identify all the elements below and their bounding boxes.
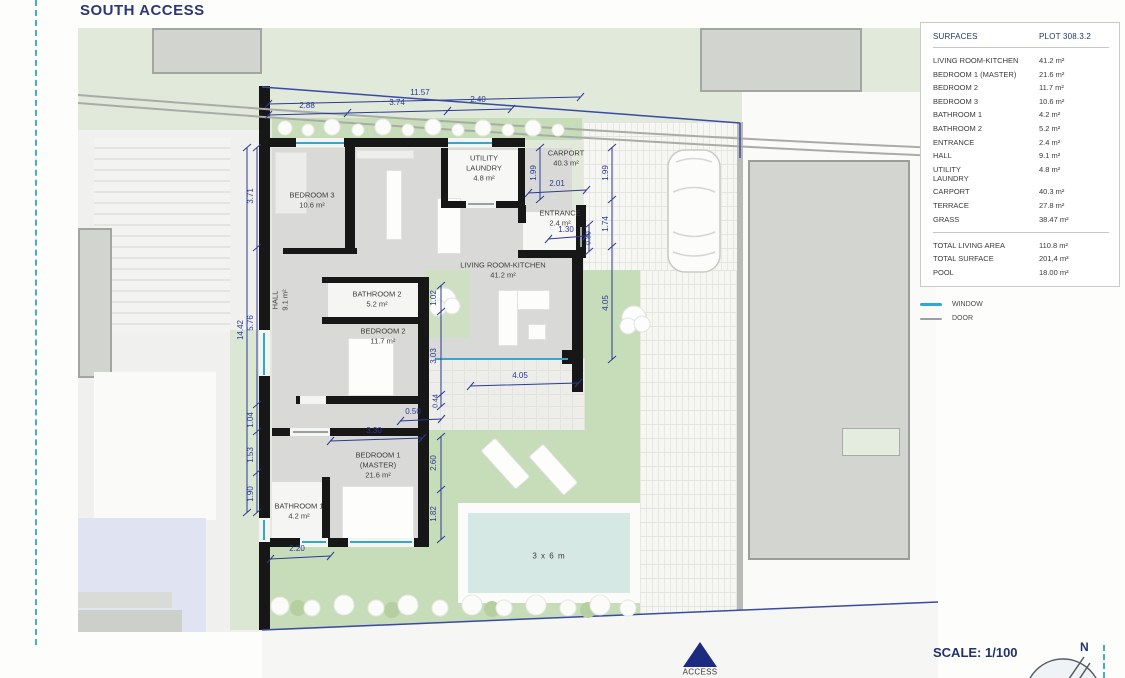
dim-label-carport-w: 2.01 bbox=[549, 180, 565, 188]
sofa-side bbox=[498, 290, 518, 346]
wall-utility-east bbox=[518, 148, 525, 208]
dim-label-in-4: 0.50 bbox=[405, 408, 421, 416]
access-label: ACCESS bbox=[683, 668, 718, 677]
surfaces-row: BEDROOM 211.7 m² bbox=[933, 83, 1109, 92]
grass-strip-top bbox=[272, 118, 582, 140]
wall-opening bbox=[348, 538, 414, 547]
room-label-utility: UTILITY LAUNDRY 4.8 m² bbox=[466, 153, 502, 182]
room-label-hall: HALL 9.1 m² bbox=[270, 289, 290, 310]
carport-paving bbox=[583, 122, 737, 272]
dim-label-left-5: 1.90 bbox=[247, 486, 255, 502]
surfaces-header-title: SURFACES bbox=[933, 32, 1039, 41]
driveway-paving bbox=[640, 270, 737, 630]
access-arrow-icon bbox=[683, 642, 717, 667]
dim-label-left-2: 5.76 bbox=[247, 315, 255, 331]
dashed-boundary-line-left bbox=[35, 0, 37, 645]
wall-closet bbox=[283, 248, 357, 254]
dim-label-right-1: 1.99 bbox=[602, 165, 610, 181]
wall-entrance-stub bbox=[518, 205, 526, 223]
surfaces-row: BATHROOM 25.2 m² bbox=[933, 124, 1109, 133]
dim-label-in-2: 3.03 bbox=[430, 348, 438, 364]
surfaces-row: HALL9.1 m² bbox=[933, 151, 1109, 160]
dashed-boundary-line-right bbox=[1103, 645, 1105, 678]
room-label-bathroom2: BATHROOM 2 5.2 m² bbox=[352, 289, 401, 309]
dim-label-entrance-d: 0.80 bbox=[586, 231, 593, 245]
wall-utility-west bbox=[441, 148, 448, 208]
wall-bathroom2-south bbox=[322, 317, 426, 324]
bed-bedroom1 bbox=[342, 486, 414, 540]
dim-label-entrance-w: 1.30 bbox=[558, 226, 574, 234]
legend: WINDOW DOOR bbox=[920, 301, 983, 329]
room-label-bathroom1: BATHROOM 1 4.2 m² bbox=[274, 501, 323, 521]
dim-label-left-3: 1.04 bbox=[247, 412, 255, 428]
bed-bedroom2 bbox=[348, 338, 394, 396]
wall-opening bbox=[300, 396, 326, 404]
dim-label-top-2: 3.74 bbox=[389, 99, 405, 107]
terrace bbox=[428, 358, 585, 430]
surfaces-row: UTILITY LAUNDRY4.8 m² bbox=[933, 165, 1109, 183]
dim-label-terrace-w: 4.05 bbox=[512, 372, 528, 380]
dim-label-in-5: 3.30 bbox=[366, 427, 382, 435]
legend-door: DOOR bbox=[920, 315, 983, 322]
wall-bedroom3-east bbox=[345, 138, 355, 250]
surfaces-panel: SURFACES PLOT 308.3.2 LIVING ROOM-KITCHE… bbox=[920, 22, 1120, 287]
legend-window-label: WINDOW bbox=[952, 301, 983, 308]
dim-label-bath1-w: 2.20 bbox=[289, 545, 305, 553]
neighbor-building-right bbox=[748, 160, 910, 560]
room-label-bedroom1: BEDROOM 1 (MASTER) 21.6 m² bbox=[355, 450, 400, 479]
neighbor-steps bbox=[78, 592, 172, 608]
wall-opening bbox=[466, 201, 496, 208]
compass-icon bbox=[1025, 657, 1101, 678]
dim-label-utility-h: 1.99 bbox=[530, 165, 538, 181]
garden-south bbox=[262, 545, 428, 630]
scale-label: SCALE: 1/100 bbox=[933, 645, 1018, 660]
side-grass-strip bbox=[230, 330, 262, 630]
room-label-bedroom2: BEDROOM 2 11.7 m² bbox=[360, 326, 405, 346]
neighbor-steps-2 bbox=[78, 610, 182, 632]
surfaces-row: LIVING ROOM-KITCHEN41.2 m² bbox=[933, 56, 1109, 65]
page-title: SOUTH ACCESS bbox=[80, 2, 205, 19]
kitchen-island bbox=[386, 170, 402, 240]
wall-opening bbox=[290, 428, 330, 436]
wall-living-corner bbox=[562, 350, 583, 364]
neighbor-building-top-left bbox=[152, 28, 262, 74]
wall-opening bbox=[259, 330, 270, 376]
room-label-bedroom3: BEDROOM 3 10.6 m² bbox=[289, 190, 334, 210]
surfaces-row: TERRACE27.8 m² bbox=[933, 201, 1109, 210]
north-label: N bbox=[1080, 640, 1089, 654]
kitchen-counter bbox=[356, 150, 414, 159]
room-label-living: LIVING ROOM-KITCHEN 41.2 m² bbox=[460, 260, 545, 280]
surfaces-total-row: POOL18.00 m² bbox=[933, 268, 1109, 277]
surfaces-row: BEDROOM 310.6 m² bbox=[933, 97, 1109, 106]
surfaces-total-row: TOTAL SURFACE201,4 m² bbox=[933, 254, 1109, 263]
pool-size-label: 3 x 6 m bbox=[532, 552, 565, 561]
dim-label-right-3: 4.05 bbox=[602, 295, 610, 311]
dim-label-left-1: 3.71 bbox=[247, 188, 255, 204]
wall-opening bbox=[259, 518, 270, 542]
surfaces-total-row: TOTAL LIVING AREA110.8 m² bbox=[933, 241, 1109, 250]
dim-label-bed1-r1: 2.60 bbox=[430, 455, 438, 471]
floor-plan-page: SOUTH ACCESS bbox=[0, 0, 1125, 678]
neighbor-terraces bbox=[94, 138, 230, 332]
dim-label-top-total: 11.57 bbox=[410, 89, 429, 97]
neighbor-pool-right bbox=[842, 428, 900, 456]
dim-label-left-4: 1.53 bbox=[247, 447, 255, 463]
dim-label-in-1: 1.02 bbox=[430, 290, 438, 306]
wall-bathroom2-north bbox=[322, 277, 426, 283]
dim-label-right-2: 1.74 bbox=[602, 216, 610, 232]
surfaces-row: CARPORT40.3 m² bbox=[933, 187, 1109, 196]
dim-label-left-total: 14.42 bbox=[237, 320, 245, 340]
door-icon bbox=[920, 318, 942, 320]
dim-label-in-3: 0.44 bbox=[433, 394, 440, 408]
surfaces-row: GRASS38.47 m² bbox=[933, 215, 1109, 224]
window-icon bbox=[920, 303, 942, 306]
wall-opening bbox=[296, 138, 344, 147]
coffee-table bbox=[528, 324, 546, 340]
wall-living-east bbox=[572, 258, 583, 392]
neighbor-building-top-right bbox=[700, 28, 862, 92]
wall-opening bbox=[448, 138, 492, 147]
surfaces-row: BEDROOM 1 (MASTER)21.6 m² bbox=[933, 70, 1109, 79]
surfaces-totals: TOTAL LIVING AREA110.8 m² TOTAL SURFACE2… bbox=[933, 232, 1109, 277]
neighbor-patio bbox=[94, 372, 216, 520]
dim-label-top-1: 2.88 bbox=[299, 102, 315, 110]
curb bbox=[737, 122, 743, 630]
surfaces-row: ENTRANCE2.4 m² bbox=[933, 138, 1109, 147]
surfaces-row: BATHROOM 14.2 m² bbox=[933, 110, 1109, 119]
legend-window: WINDOW bbox=[920, 301, 983, 308]
legend-door-label: DOOR bbox=[952, 315, 973, 322]
surfaces-header-plot: PLOT 308.3.2 bbox=[1039, 32, 1109, 41]
neighbor-building-left bbox=[78, 228, 112, 378]
surfaces-header: SURFACES PLOT 308.3.2 bbox=[933, 32, 1109, 48]
dim-label-bed1-r2: 1.82 bbox=[430, 506, 438, 522]
dim-label-top-3: 2.40 bbox=[470, 96, 486, 104]
room-label-carport: CARPORT 40.3 m² bbox=[548, 148, 585, 168]
wall-entrance-south bbox=[518, 250, 586, 258]
